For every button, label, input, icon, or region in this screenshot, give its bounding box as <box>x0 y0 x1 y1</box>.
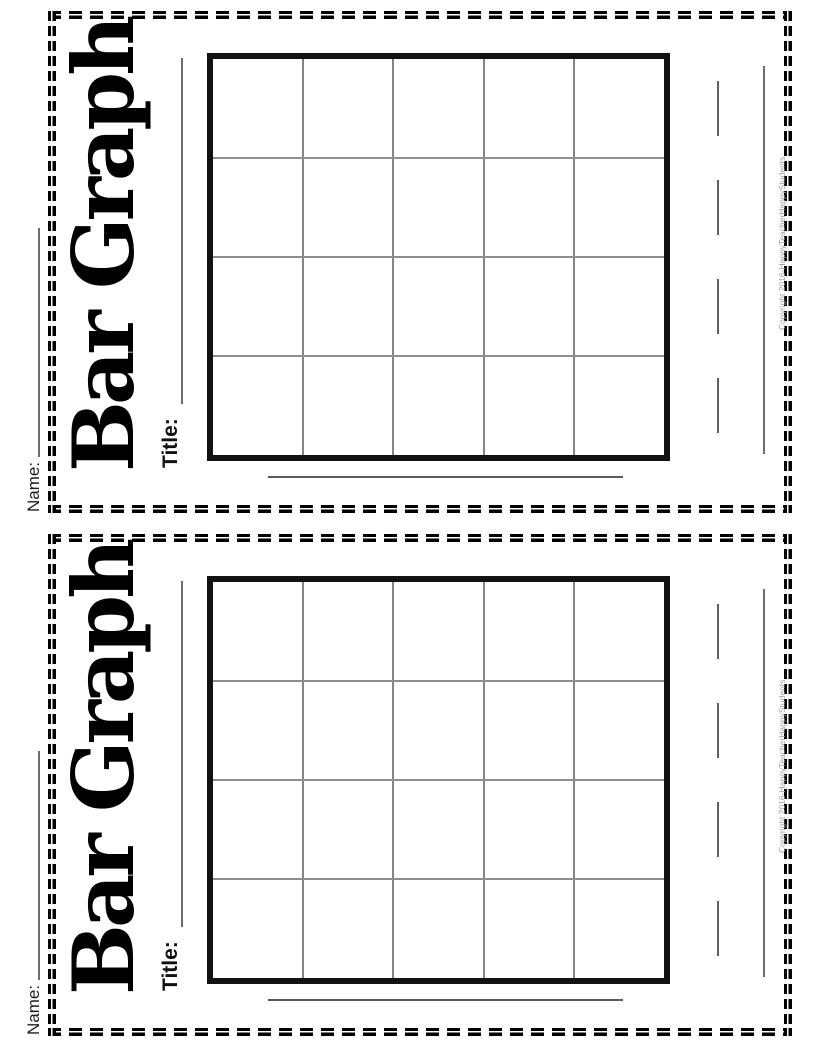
title-write-line <box>181 581 183 927</box>
title-label: Title: <box>152 406 190 468</box>
stitched-border-top <box>48 534 792 542</box>
copyright-text: Copyright 2016-HappyTeacherHappyStudents <box>776 675 789 853</box>
label-dash-line <box>717 901 719 956</box>
label-dash-line <box>717 604 719 659</box>
label-dash-line <box>717 279 719 334</box>
axis-title-line <box>763 66 765 454</box>
name-label: Name: <box>23 978 45 1035</box>
stitched-border-bottom <box>48 505 792 513</box>
copyright-text: Copyright 2016-HappyTeacherHappyStudents <box>776 152 789 330</box>
bar-graph-grid <box>207 53 670 461</box>
worksheet-panel-top: Name: Bar Graph Title: Copyright 2016-Ha… <box>46 11 793 513</box>
label-dash-line <box>717 81 719 136</box>
label-dash-line <box>717 703 719 758</box>
grid-row-line <box>213 355 664 357</box>
stitched-border-top <box>48 11 792 19</box>
bar-graph-grid <box>207 576 670 984</box>
stitched-border-bottom <box>48 1028 792 1036</box>
axis-label-line <box>268 999 623 1001</box>
label-dash-line <box>717 180 719 235</box>
grid-row-line <box>213 779 664 781</box>
label-dash-line <box>717 378 719 433</box>
grid-row-line <box>213 157 664 159</box>
axis-label-line <box>268 476 623 478</box>
label-dash-line <box>717 802 719 857</box>
title-write-line <box>181 58 183 404</box>
category-label-dashes <box>717 59 719 455</box>
page-title: Bar Graph <box>58 559 150 995</box>
category-label-dashes <box>717 582 719 978</box>
axis-title-line <box>763 589 765 977</box>
title-label: Title: <box>152 929 190 991</box>
grid-row-line <box>213 680 664 682</box>
worksheet-panel-bottom: Name: Bar Graph Title: Copyright 2016-Ha… <box>46 534 793 1036</box>
grid-row-line <box>213 256 664 258</box>
name-write-line <box>38 228 40 457</box>
page-title: Bar Graph <box>58 36 150 472</box>
name-write-line <box>38 751 40 980</box>
worksheet-page: Name: Bar Graph Title: Copyright 2016-Ha… <box>0 0 816 1056</box>
name-label: Name: <box>23 455 45 512</box>
grid-row-line <box>213 878 664 880</box>
